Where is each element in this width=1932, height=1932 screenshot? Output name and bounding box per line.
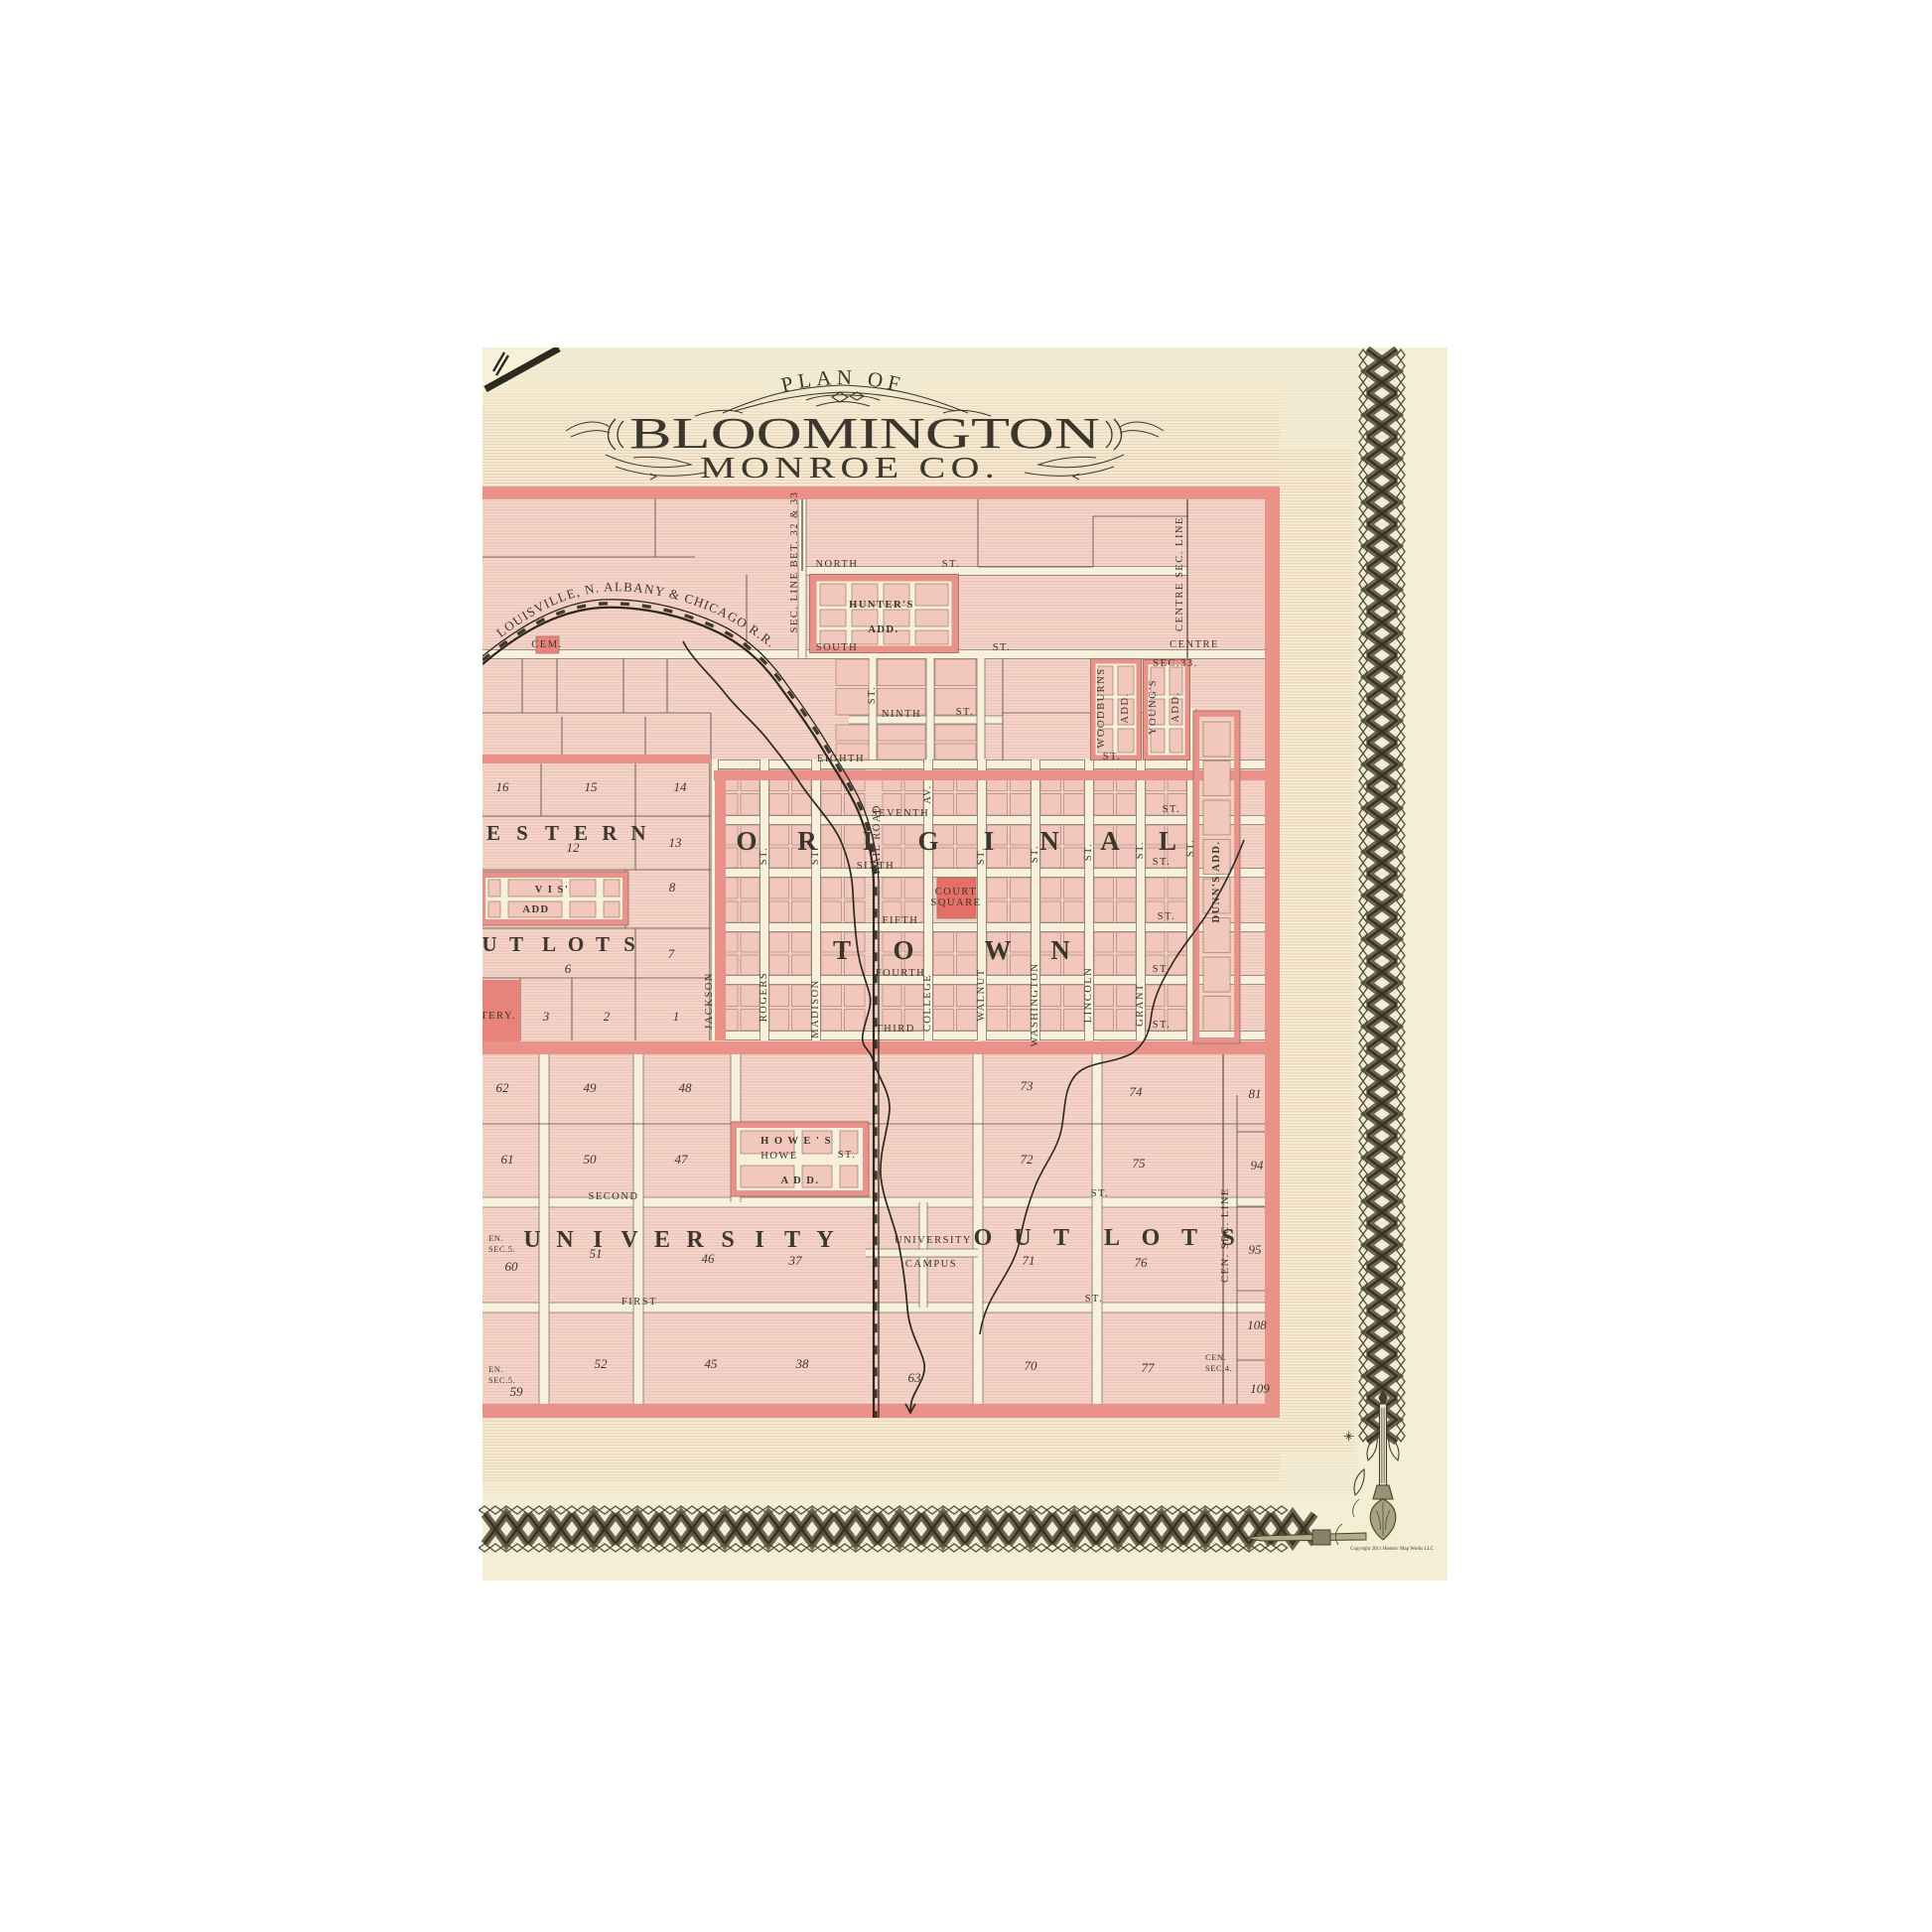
svg-text:O: O [893, 935, 913, 965]
svg-text:1: 1 [673, 1009, 680, 1024]
svg-text:I: I [984, 826, 995, 856]
svg-text:E: E [486, 821, 500, 845]
svg-text:R: R [602, 821, 618, 845]
svg-text:74: 74 [1130, 1084, 1144, 1099]
svg-text:38: 38 [795, 1356, 810, 1371]
svg-text:N: N [630, 821, 645, 845]
svg-text:SEC.5.: SEC.5. [488, 1244, 515, 1254]
svg-text:JACKSON: JACKSON [704, 972, 715, 1030]
svg-text:T: T [784, 1227, 800, 1253]
svg-text:V: V [621, 1227, 638, 1253]
svg-text:SEC. LINE BET. 32 & 33: SEC. LINE BET. 32 & 33 [789, 491, 800, 633]
svg-text:ST.: ST. [1163, 804, 1181, 815]
svg-text:FOURTH: FOURTH [876, 968, 925, 979]
svg-text:T: T [509, 932, 523, 956]
svg-text:72: 72 [1021, 1152, 1035, 1167]
svg-text:81: 81 [1249, 1086, 1262, 1101]
svg-text:LINCOLN: LINCOLN [1083, 967, 1094, 1024]
svg-text:45: 45 [705, 1356, 719, 1371]
svg-text:L: L [542, 932, 556, 956]
svg-text:ST.: ST. [1158, 911, 1176, 922]
svg-text:S: S [1221, 1225, 1234, 1251]
svg-text:3: 3 [542, 1009, 550, 1024]
svg-text:ST.: ST. [1135, 841, 1146, 860]
svg-text:DUNN'S ADD.: DUNN'S ADD. [1211, 840, 1222, 922]
svg-text:48: 48 [679, 1080, 693, 1095]
svg-text:16: 16 [496, 779, 510, 794]
svg-text:51: 51 [590, 1246, 603, 1261]
svg-text:CEN.: CEN. [1205, 1352, 1226, 1362]
svg-text:I: I [755, 1227, 763, 1253]
svg-text:N: N [1039, 826, 1059, 856]
svg-text:L: L [1104, 1225, 1120, 1251]
svg-text:ST.: ST. [1083, 843, 1094, 862]
svg-text:ROGERS: ROGERS [759, 972, 769, 1022]
svg-text:A D D.: A D D. [780, 1175, 819, 1186]
svg-text:AV.: AV. [922, 784, 933, 804]
svg-text:R: R [797, 826, 817, 856]
svg-text:CEM.: CEM. [531, 639, 562, 650]
svg-text:MONROE CO.: MONROE CO. [700, 450, 1000, 484]
svg-text:ST.: ST. [838, 1150, 857, 1161]
svg-text:ST.: ST. [1185, 839, 1196, 858]
svg-text:47: 47 [675, 1152, 689, 1167]
svg-text:ST.: ST. [1103, 752, 1122, 762]
svg-text:ST.: ST. [1153, 964, 1172, 975]
svg-text:H O W E ' S: H O W E ' S [760, 1136, 832, 1147]
svg-text:13: 13 [669, 835, 683, 850]
svg-text:O: O [568, 932, 584, 956]
svg-text:Copyright 2011 Historic Map Wo: Copyright 2011 Historic Map Works LLC [1350, 1547, 1435, 1552]
svg-text:109: 109 [1250, 1381, 1270, 1396]
svg-text:EN.: EN. [488, 1233, 503, 1243]
svg-text:37: 37 [788, 1253, 803, 1268]
svg-text:NORTH: NORTH [815, 559, 858, 570]
svg-text:75: 75 [1133, 1156, 1147, 1171]
svg-text:7: 7 [668, 946, 675, 961]
svg-text:ST.: ST. [942, 559, 961, 570]
svg-text:46: 46 [702, 1251, 716, 1266]
svg-text:O: O [1142, 1225, 1161, 1251]
svg-text:49: 49 [584, 1080, 598, 1095]
svg-text:CENTRE SEC. LINE: CENTRE SEC. LINE [1174, 516, 1185, 631]
svg-text:77: 77 [1142, 1360, 1156, 1375]
svg-text:THIRD: THIRD [876, 1024, 915, 1035]
svg-text:108: 108 [1247, 1317, 1267, 1332]
svg-text:ST.: ST. [759, 847, 769, 866]
svg-text:T: T [833, 935, 851, 965]
svg-text:ST.: ST. [993, 642, 1012, 653]
svg-text:73: 73 [1021, 1078, 1035, 1093]
svg-text:COLLEGE: COLLEGE [922, 974, 933, 1032]
svg-text:ADD: ADD [522, 904, 549, 915]
svg-text:14: 14 [674, 779, 688, 794]
svg-text:ST.: ST. [1153, 1020, 1172, 1031]
svg-text:ADD.: ADD. [868, 624, 898, 635]
svg-text:95: 95 [1249, 1242, 1263, 1257]
svg-text:SEC.5.: SEC.5. [488, 1375, 515, 1385]
svg-text:UNIVERSITY: UNIVERSITY [895, 1235, 972, 1246]
svg-text:76: 76 [1135, 1255, 1149, 1270]
svg-text:ST.: ST. [1085, 1294, 1104, 1305]
svg-text:N: N [1050, 935, 1070, 965]
svg-text:NINTH: NINTH [882, 709, 921, 720]
svg-text:TERY.: TERY. [481, 1011, 516, 1022]
svg-text:50: 50 [584, 1152, 598, 1167]
svg-text:S: S [721, 1227, 734, 1253]
svg-text:ST.: ST. [1153, 857, 1172, 868]
svg-text:U: U [1014, 1225, 1031, 1251]
svg-text:ADD.: ADD. [1171, 691, 1181, 722]
svg-text:2: 2 [604, 1009, 611, 1024]
svg-text:15: 15 [585, 779, 599, 794]
svg-text:RAIL ROAD: RAIL ROAD [872, 804, 883, 874]
svg-text:SOUTH: SOUTH [816, 642, 859, 653]
svg-text:CENTRE: CENTRE [1170, 639, 1219, 650]
svg-text:YOUNG'S: YOUNG'S [1148, 679, 1159, 735]
svg-text:60: 60 [505, 1259, 519, 1274]
svg-text:WOODBURNS: WOODBURNS [1096, 667, 1107, 748]
svg-text:71: 71 [1023, 1253, 1035, 1268]
svg-text:T: T [596, 932, 610, 956]
svg-text:EIGHTH: EIGHTH [817, 754, 865, 764]
svg-text:CAMPUS: CAMPUS [905, 1259, 957, 1270]
svg-text:FIRST: FIRST [621, 1297, 657, 1308]
svg-text:FIFTH: FIFTH [883, 915, 919, 926]
svg-text:G: G [917, 826, 938, 856]
svg-text:L: L [1159, 826, 1176, 856]
svg-text:6: 6 [565, 961, 572, 976]
svg-text:A: A [1100, 826, 1120, 856]
svg-text:WALNUT: WALNUT [976, 968, 987, 1021]
svg-text:V I S': V I S' [535, 885, 570, 896]
svg-text:U: U [482, 932, 496, 956]
svg-text:SQUARE: SQUARE [930, 897, 981, 908]
svg-text:12: 12 [567, 840, 581, 855]
svg-text:COURT: COURT [935, 887, 977, 897]
svg-text:61: 61 [501, 1152, 514, 1167]
svg-text:8: 8 [669, 880, 676, 895]
svg-text:MADISON: MADISON [810, 979, 821, 1038]
svg-text:WASHINGTON: WASHINGTON [1030, 963, 1040, 1047]
svg-text:E: E [654, 1227, 670, 1253]
svg-text:Y: Y [816, 1227, 833, 1253]
svg-text:59: 59 [510, 1384, 524, 1399]
svg-text:ST.: ST. [867, 686, 878, 705]
svg-text:T: T [1181, 1225, 1197, 1251]
svg-text:94: 94 [1251, 1158, 1265, 1173]
svg-text:HUNTER'S: HUNTER'S [849, 600, 914, 611]
svg-text:ADD.: ADD. [1120, 692, 1131, 723]
svg-text:S: S [623, 932, 635, 956]
svg-text:SECOND: SECOND [588, 1191, 638, 1202]
svg-text:52: 52 [595, 1356, 609, 1371]
svg-text:70: 70 [1025, 1358, 1038, 1373]
svg-text:HOWE: HOWE [760, 1151, 798, 1162]
svg-text:T: T [545, 821, 559, 845]
svg-text:ST.: ST. [1091, 1188, 1110, 1199]
svg-text:N: N [556, 1227, 574, 1253]
svg-text:EN.: EN. [488, 1364, 503, 1374]
svg-text:63: 63 [908, 1370, 922, 1385]
svg-text:O: O [736, 826, 757, 856]
svg-text:ST.: ST. [956, 707, 975, 718]
svg-text:I: I [863, 826, 874, 856]
svg-text:S: S [516, 821, 528, 845]
svg-text:SEC.33.: SEC.33. [1153, 658, 1198, 669]
svg-text:GRANT: GRANT [1135, 983, 1146, 1027]
svg-text:W: W [985, 935, 1012, 965]
svg-text:62: 62 [496, 1080, 510, 1095]
svg-text:SEC.4.: SEC.4. [1205, 1363, 1232, 1373]
svg-text:R: R [686, 1227, 704, 1253]
svg-text:T: T [1053, 1225, 1069, 1251]
svg-text:U: U [523, 1227, 540, 1253]
svg-text:O: O [974, 1225, 993, 1251]
